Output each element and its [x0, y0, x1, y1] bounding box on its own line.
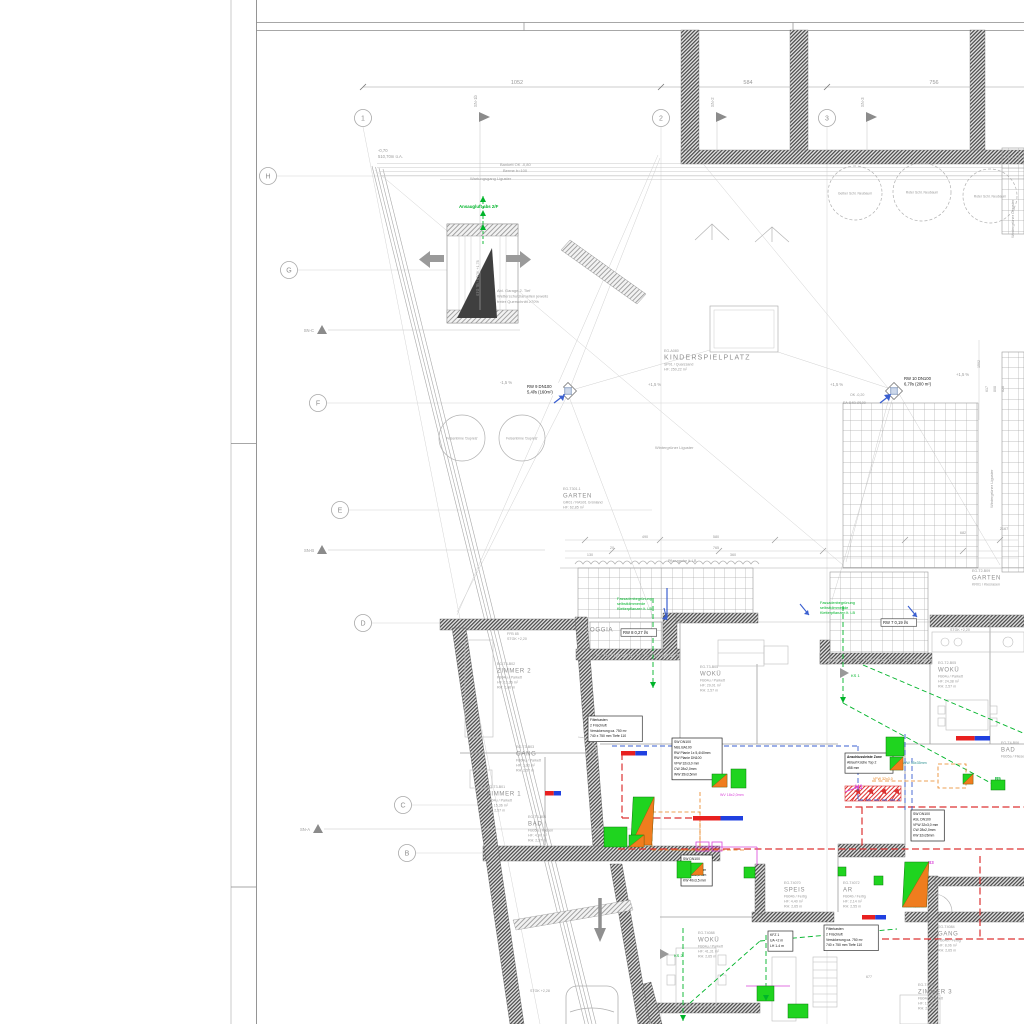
- room-sub: KR01 / Kiesrasen: [972, 583, 1000, 587]
- svg-text:RW 10 DN1006,7l/s (200 m²): RW 10 DN1006,7l/s (200 m²): [904, 376, 932, 386]
- svg-text:EG-T2-B09: EG-T2-B09: [972, 569, 990, 573]
- svg-text:STGK +2,28: STGK +2,28: [530, 989, 550, 993]
- svg-text:EG-T4084: EG-T4084: [938, 925, 955, 929]
- room-sub: FB04u / Parkett: [918, 997, 943, 1001]
- room-name: SPEIS: [784, 888, 805, 894]
- room-wokü: EG-T4088WOKÜFB04u / ParkettHF: 41,31 m²R…: [698, 931, 723, 959]
- annotation: 2167: [1000, 527, 1008, 531]
- svg-text:GR01 / RAS01 Grünland: GR01 / RAS01 Grünland: [563, 501, 603, 505]
- annotation: STGK +2,20: [950, 628, 970, 632]
- svg-text:RW Planie DN100: RW Planie DN100: [674, 756, 702, 760]
- annotation: Wartungsgang Liguster: [470, 176, 512, 181]
- svg-text:HF: 24,38 m²: HF: 24,38 m²: [938, 680, 960, 684]
- svg-text:FB05a / Fliesen: FB05a / Fliesen: [528, 829, 553, 833]
- svg-text:HF: 13,06 m²: HF: 13,06 m²: [918, 1002, 940, 1006]
- pipe-legend-line: WW 35x3,5mm: [674, 772, 697, 776]
- room-sub: RH: 2,66 m: [497, 686, 515, 690]
- room-name: ZIMMER 2: [497, 669, 531, 675]
- annotation: +1,5 %: [956, 372, 969, 377]
- svg-text:WW 35x35mm: WW 35x35mm: [903, 761, 927, 765]
- note-line: 2 Frischluft: [590, 723, 607, 727]
- section-marker-label: SN-3: [860, 97, 865, 107]
- room-sub: RH: 2,57 m: [700, 689, 718, 693]
- svg-text:Wartungsgang Liguster: Wartungsgang Liguster: [470, 176, 512, 181]
- top-walls: [681, 30, 1024, 164]
- room-bad: EG-T3-B04BADFB05a / FliesenHF: 4,97 m²RH…: [528, 815, 553, 843]
- svg-text:RH: 2,57 m: RH: 2,57 m: [516, 769, 534, 773]
- dimension-value: 756: [929, 80, 938, 86]
- room-sub: HF: 24,38 m²: [938, 680, 960, 684]
- svg-text:CW 28x2,0mm: CW 28x2,0mm: [674, 767, 697, 771]
- room-wokü: EG-T3-B05WOKÜFB04u / ParkettHF: 29,01 m²…: [700, 665, 725, 693]
- svg-text:Filterkasten: Filterkasten: [590, 718, 608, 722]
- svg-text:RH: 2,57 m: RH: 2,57 m: [528, 839, 546, 843]
- annotation: 130: [587, 553, 593, 557]
- svg-text:VFW 32x3,0: VFW 32x3,0: [873, 777, 893, 781]
- svg-text:-0,70: -0,70: [378, 148, 388, 153]
- room-name: ZIMMER 1: [487, 792, 521, 798]
- svg-text:EG-T3-B02: EG-T3-B02: [497, 662, 515, 666]
- grid-axis-label: 1: [361, 116, 365, 123]
- svg-text:EG-T3-B03: EG-T3-B03: [516, 745, 534, 749]
- svg-text:SW DN100: SW DN100: [683, 857, 700, 861]
- tree-label: Gelber Schl. Neubaum: [838, 192, 872, 196]
- annotation: 677: [866, 975, 872, 979]
- rw-flow-tag: RW 8 0,27 l/s: [621, 629, 657, 636]
- svg-text:STG 7B / STGK +1,78: STG 7B / STGK +1,78: [476, 260, 480, 296]
- annotation: Pflanzgrube lt. LB: [668, 559, 697, 563]
- red-blue-bar: [956, 736, 990, 741]
- room-sub: RH: 2,65 m: [784, 905, 802, 909]
- annotation: Wintergrüner Liguster: [1010, 199, 1015, 238]
- fixture-g: [677, 861, 691, 878]
- svg-text:Wintergrüner Liguster: Wintergrüner Liguster: [989, 469, 994, 508]
- svg-text:EG-T4070: EG-T4070: [784, 881, 801, 885]
- room-sub: RH: 2,65 m: [918, 1007, 936, 1011]
- svg-text:RH: 2,65 m: RH: 2,65 m: [918, 1007, 936, 1011]
- room-name: GARTEN: [972, 576, 1001, 582]
- svg-text:Felsenbirne 'Dupreis': Felsenbirne 'Dupreis': [446, 437, 478, 441]
- pipe-legend-box: SW DN100NBL BA100RW Planie 1x 5,4/40mmRW…: [672, 738, 722, 780]
- svg-text:3: 3: [825, 116, 829, 123]
- pipe-legend-line: CW 28x2,0mm: [674, 767, 697, 771]
- section-marker-label: SN-B: [304, 548, 314, 553]
- note-line: Versickerung ca. 750 m³: [826, 938, 863, 942]
- grid-axis-1: 1: [355, 110, 372, 127]
- room-sub: HF: 29,01 m²: [700, 684, 722, 688]
- annotation: KS 2: [674, 953, 683, 958]
- svg-text:KFZ 1: KFZ 1: [770, 933, 779, 937]
- red-blue-bar: [862, 915, 886, 920]
- svg-text:580: 580: [713, 535, 719, 539]
- svg-text:EG-T4088: EG-T4088: [698, 931, 715, 935]
- svg-text:EG-T3-B05: EG-T3-B05: [700, 665, 718, 669]
- pipe-legend-line: SW DN100: [913, 812, 930, 816]
- pergola-grids: [578, 148, 1024, 654]
- annotation: +1,5 %: [648, 382, 661, 387]
- svg-text:GARTEN: GARTEN: [972, 576, 1001, 582]
- annotation: STG 7B / STGK +1,78: [476, 260, 480, 296]
- svg-text:Anschlussleiste Zone: Anschlussleiste Zone: [847, 755, 882, 759]
- room-sub: RH: 2,65 m: [698, 955, 716, 959]
- annotation: 828: [1001, 386, 1005, 392]
- rw-flow-tag: RW 7 0,19 l/s: [881, 619, 917, 626]
- annotation: Wintergrüner Liguster: [989, 469, 994, 508]
- svg-text:130: 130: [587, 553, 593, 557]
- svg-text:RW 8 0,27 l/s: RW 8 0,27 l/s: [623, 630, 648, 635]
- dimension-value: 584: [743, 80, 752, 86]
- room-wokü: EG-T2-B05WOKÜFB04u / ParkettHF: 24,38 m²…: [938, 661, 963, 689]
- room-sub: SP01 / Quarzsand: [664, 363, 693, 367]
- svg-text:SN-B: SN-B: [304, 548, 314, 553]
- svg-text:B: B: [405, 851, 410, 858]
- drain-label: RW 10 DN1006,7l/s (200 m²): [902, 375, 943, 388]
- svg-text:SPEIS: SPEIS: [784, 888, 805, 894]
- annotation: -1,5 %: [500, 380, 512, 385]
- room-garten: EG-T2-B09GARTENKR01 / Kiesrasen: [972, 569, 1001, 587]
- svg-text:RH: 2,57 m: RH: 2,57 m: [700, 689, 718, 693]
- svg-text:FB04u / Parkett: FB04u / Parkett: [497, 676, 522, 680]
- svg-text:HF: 8,06 m²: HF: 8,06 m²: [938, 944, 958, 948]
- room-sub: HF: 13,36 m²: [497, 681, 519, 685]
- room-id: EG-T3-B04: [528, 815, 546, 819]
- svg-text:2167: 2167: [1000, 527, 1008, 531]
- svg-text:Versickerung ca. 750 m³: Versickerung ca. 750 m³: [590, 729, 627, 733]
- grid-axis-label: F: [316, 401, 320, 408]
- svg-text:FB04u / Parkett: FB04u / Parkett: [698, 945, 723, 949]
- svg-text:VFW 32x3,0 mm: VFW 32x3,0 mm: [674, 762, 699, 766]
- svg-text:HF: 4,97 m²: HF: 4,97 m²: [528, 834, 548, 838]
- svg-text:ZIMMER 2: ZIMMER 2: [497, 669, 531, 675]
- note-line: UA +2 m: [770, 938, 783, 942]
- svg-text:-1,5 %: -1,5 %: [500, 380, 512, 385]
- room-garten: EG-T301.1GARTENGR01 / RAS01 GrünlandHF: …: [563, 487, 603, 510]
- fixture-go: [890, 757, 903, 770]
- pipe-legend-line: KW 40x3,5 mm: [683, 879, 706, 883]
- svg-text:GANG: GANG: [516, 752, 536, 758]
- svg-text:360: 360: [730, 553, 736, 557]
- svg-text:Gelber Schl. Neubaum: Gelber Schl. Neubaum: [838, 192, 872, 196]
- annotation: Abl. Garage 2. TiefWetterschutzlamellen …: [497, 288, 548, 304]
- room-sub: FB04u / Parkett: [698, 945, 723, 949]
- fixture-g: [991, 780, 1005, 790]
- car: [566, 986, 618, 1024]
- green-arrow: [680, 1015, 686, 1021]
- annotation: WV 18x2,0mm: [720, 793, 744, 797]
- svg-text:Versickerung ca. 750 m³: Versickerung ca. 750 m³: [826, 938, 863, 942]
- fixture-go: [963, 774, 973, 784]
- svg-text:HF: 62,85 m²: HF: 62,85 m²: [563, 506, 585, 510]
- svg-text:SN-C: SN-C: [304, 328, 314, 333]
- room-sub: RH: 2,65 m: [938, 949, 956, 953]
- red-blue-bar: [621, 751, 647, 756]
- svg-text:RW Planie 1x 5,4/40mm: RW Planie 1x 5,4/40mm: [674, 751, 711, 755]
- fixture-tall: [902, 862, 928, 907]
- svg-text:RH: 2,65 m: RH: 2,65 m: [698, 955, 716, 959]
- note-line: Anschlussleiste Zone: [847, 755, 882, 759]
- svg-text:677: 677: [866, 975, 872, 979]
- svg-text:E: E: [338, 508, 343, 515]
- grid-axis-3: 3: [819, 110, 836, 127]
- room-sub: FB04u / Parkett: [700, 679, 725, 683]
- svg-text:d58 mm: d58 mm: [847, 766, 859, 770]
- grid-axis-E: E: [332, 502, 349, 519]
- section-marker-label: SN-2: [710, 97, 715, 107]
- room-id: EG-T4072: [843, 881, 860, 885]
- svg-text:+1,5 %: +1,5 %: [830, 382, 843, 387]
- room-id: EG-T3-B02: [497, 662, 515, 666]
- svg-text:BAD: BAD: [1001, 748, 1015, 754]
- annotation: 20: [610, 546, 614, 550]
- pipe-legend-line: KW 32x26mm: [913, 834, 934, 838]
- room-name: LOGGIA: [586, 628, 613, 634]
- grid-axis-D: D: [355, 615, 372, 632]
- svg-text:765: 765: [713, 546, 719, 550]
- svg-text:FB04u / Parkett: FB04u / Parkett: [516, 759, 541, 763]
- svg-text:HF: 4,40 m²: HF: 4,40 m²: [784, 900, 804, 904]
- svg-text:1: 1: [361, 116, 365, 123]
- section-marker-label: SN-1b: [473, 94, 478, 107]
- exterior-stair: [561, 240, 646, 304]
- svg-text:ZIMMER 1: ZIMMER 1: [487, 792, 521, 798]
- svg-text:EG-T4072: EG-T4072: [843, 881, 860, 885]
- svg-text:ASL DN100: ASL DN100: [913, 817, 931, 821]
- room-name: AR: [843, 888, 853, 894]
- svg-text:FB04u / Parkett: FB04u / Parkett: [487, 799, 512, 803]
- room-id: EG-A080: [664, 349, 679, 353]
- svg-text:UA +2 m: UA +2 m: [770, 938, 783, 942]
- svg-text:2 Frischluft: 2 Frischluft: [826, 932, 843, 936]
- room-name: GARTEN: [563, 494, 592, 500]
- svg-text:EG-T301.1: EG-T301.1: [563, 487, 581, 491]
- fixture-go: [691, 863, 703, 875]
- svg-text:EA-B4B-Ø100: EA-B4B-Ø100: [843, 401, 866, 405]
- svg-text:SN-A: SN-A: [300, 827, 310, 832]
- annotation: 765: [713, 546, 719, 550]
- room-loggia: LOGGIA: [586, 628, 613, 634]
- room-ar: EG-T4072ARFB04b / FertigHF: 2,14 m²RH: 2…: [843, 881, 866, 909]
- room-name: GANG: [516, 752, 536, 758]
- room-sub: HF: 3,03 m²: [516, 764, 536, 768]
- svg-text:FB05a / Fliesen: FB05a / Fliesen: [1001, 755, 1024, 759]
- room-sub: FB04u / Parkett: [938, 675, 963, 679]
- svg-text:HF: 15,36 m²: HF: 15,36 m²: [487, 804, 509, 808]
- room-id: EG-T4070: [784, 881, 801, 885]
- svg-text:682: 682: [960, 531, 966, 535]
- room-id: EG-T2-B05: [938, 661, 956, 665]
- svg-text:H1: H1: [855, 785, 863, 791]
- svg-text:LH 1-4 m: LH 1-4 m: [770, 944, 784, 948]
- svg-text:SN-2: SN-2: [710, 97, 715, 107]
- fixture-g: [744, 867, 755, 878]
- annotation: 1502: [977, 360, 981, 368]
- grid-axis-2: 2: [653, 110, 670, 127]
- svg-text:G: G: [286, 268, 291, 275]
- svg-text:RH: 2,57 m: RH: 2,57 m: [487, 809, 505, 813]
- green-arrow: [650, 682, 656, 688]
- svg-text:STGK +2,20: STGK +2,20: [950, 628, 970, 632]
- svg-text:SW DN100: SW DN100: [674, 740, 691, 744]
- svg-text:Abl. Garage 2. TiefWetterschut: Abl. Garage 2. TiefWetterschutzlamellen …: [497, 288, 548, 304]
- room-sub: RH: 2,57 m: [528, 839, 546, 843]
- sandbox: [695, 224, 789, 352]
- svg-text:Berme b=100: Berme b=100: [503, 168, 528, 173]
- annotation: WW 35x35mm: [903, 761, 927, 765]
- grid-axis-label: D: [360, 621, 365, 628]
- svg-text:SP01 / Quarzsand: SP01 / Quarzsand: [664, 363, 693, 367]
- svg-text:SW DN100: SW DN100: [913, 812, 930, 816]
- red-blue-bar: [693, 816, 743, 821]
- tree-label: Felsenbirne 'Dupreis': [506, 437, 538, 441]
- svg-text:2: 2: [659, 116, 663, 123]
- room-zimmer-2: EG-T3-B02ZIMMER 2FB04u / ParkettHF: 13,3…: [497, 662, 531, 690]
- annotation: OK -0,20: [850, 393, 864, 397]
- svg-text:RW 9 DN1005,4l/s (160m²): RW 9 DN1005,4l/s (160m²): [527, 384, 553, 394]
- room-sub: HF: 8,06 m²: [938, 944, 958, 948]
- annotation: Bankett OK -0,80: [500, 162, 531, 167]
- note-line: Filterkasten: [826, 927, 844, 931]
- room-sub: FB04u / Parkett: [487, 799, 512, 803]
- grid-axis-H: H: [260, 168, 277, 185]
- tree-label: Felsenbirne 'Dupreis': [446, 437, 478, 441]
- pipe-legend-line: RW Planie DN100: [674, 756, 702, 760]
- svg-text:RW 7 0,19 l/s: RW 7 0,19 l/s: [883, 620, 908, 625]
- grid-axis-label: C: [400, 803, 405, 810]
- svg-text:510,70m ü.A.: 510,70m ü.A.: [378, 154, 403, 159]
- svg-text:EG-T4-B06: EG-T4-B06: [1001, 741, 1019, 745]
- annotation: -0,70: [378, 148, 388, 153]
- svg-text:AR: AR: [843, 888, 853, 894]
- pipe-legend-line: ASL DN100: [913, 817, 931, 821]
- cad-floor-plan-sheet: 123HGFEDCBSN-1bSN-2SN-3SN-CSN-BSN-A10525…: [0, 0, 1024, 1024]
- room-sub: FB04b / Fertig: [938, 939, 961, 943]
- room-zimmer-1: EG-T3-B01ZIMMER 1FB04u / ParkettHF: 15,3…: [487, 785, 521, 813]
- annotation: 510,70m ü.A.: [378, 154, 403, 159]
- svg-text:490: 490: [642, 535, 648, 539]
- fixture-g: [604, 827, 627, 847]
- note-line: KFZ 1: [770, 933, 779, 937]
- pipe-legend-line: VFW 32x3,0 mm: [913, 823, 938, 827]
- svg-text:Wintergrüner Liguster: Wintergrüner Liguster: [1010, 199, 1015, 238]
- section-marker-SN-B: SN-B: [304, 545, 545, 554]
- annotation: 808: [993, 386, 997, 392]
- note-line: d58 mm: [847, 766, 859, 770]
- section-marker-label: SN-A: [300, 827, 310, 832]
- svg-text:FB04b / Fertig: FB04b / Fertig: [843, 895, 866, 899]
- svg-text:CW 28x2,0mm: CW 28x2,0mm: [913, 828, 936, 832]
- section-marker-SN-2: SN-2: [710, 97, 727, 152]
- floor-plan-canvas: 123HGFEDCBSN-1bSN-2SN-3SN-CSN-BSN-A10525…: [0, 0, 1024, 1024]
- room-sub: FB04b / Fertig: [843, 895, 866, 899]
- room-gang: EG-T3-B03GANGFB04u / ParkettHF: 3,03 m²R…: [516, 745, 541, 773]
- svg-text:WOKÜ: WOKÜ: [698, 937, 719, 944]
- grid-axis-F: F: [310, 395, 327, 412]
- room-sub: GR01 / RAS01 Grünland: [563, 501, 603, 505]
- svg-text:KS 1: KS 1: [851, 673, 860, 678]
- svg-text:FB04b / Fertig: FB04b / Fertig: [784, 895, 807, 899]
- svg-text:740 x 750 mm Tiefe 110: 740 x 750 mm Tiefe 110: [826, 943, 862, 947]
- grid-axis-label: B: [405, 851, 410, 858]
- annotation: 360: [730, 553, 736, 557]
- svg-text:756: 756: [929, 80, 938, 86]
- drain-label: RW 9 DN1005,4l/s (160m²): [525, 383, 563, 396]
- heating-manifold: [845, 786, 901, 801]
- room-name: WOKÜ: [700, 671, 721, 678]
- svg-text:HF: 29,01 m²: HF: 29,01 m²: [700, 684, 722, 688]
- svg-text:SN-1b: SN-1b: [473, 94, 478, 107]
- dimension-value: 1052: [511, 80, 523, 86]
- grid-axis-C: C: [395, 797, 412, 814]
- room-sub: HF: 13,06 m²: [918, 1002, 940, 1006]
- svg-text:EG-T3-B01: EG-T3-B01: [487, 785, 505, 789]
- tree: Felsenbirne 'Dupreis': [439, 415, 485, 461]
- note-line: 2 Frischluft: [826, 932, 843, 936]
- svg-text:740 x 750 mm Tiefe 110: 740 x 750 mm Tiefe 110: [590, 734, 626, 738]
- room-sub: HF: 250,22 m²: [664, 368, 688, 372]
- room-id: EG-T4086: [918, 983, 935, 987]
- svg-text:Filterkasten: Filterkasten: [826, 927, 844, 931]
- svg-text:EG-T4086: EG-T4086: [918, 983, 935, 987]
- room-sub: FB04b / Fertig: [784, 895, 807, 899]
- svg-text:Roter Schl. Neubaum: Roter Schl. Neubaum: [974, 195, 1007, 199]
- svg-text:EG-A080: EG-A080: [664, 349, 679, 353]
- grid-axis-B: B: [399, 845, 416, 862]
- room-sub: RH: 2,57 m: [516, 769, 534, 773]
- room-id: EG-T301.1: [563, 487, 581, 491]
- svg-text:KINDERSPIELPLATZ: KINDERSPIELPLATZ: [664, 355, 751, 362]
- tree: Gelber Schl. Neubaum: [828, 166, 882, 220]
- fixture-g: [886, 737, 904, 756]
- svg-text:KW 40x3,5 mm: KW 40x3,5 mm: [683, 879, 706, 883]
- note-line: Filterkasten: [590, 718, 608, 722]
- annotation: 580: [713, 535, 719, 539]
- annotation: Berme b=100: [503, 168, 528, 173]
- fixture-g: [788, 1004, 808, 1018]
- svg-text:FB04b / Fertig: FB04b / Fertig: [938, 939, 961, 943]
- svg-text:GANG: GANG: [938, 932, 958, 938]
- fixture-go: [712, 774, 727, 787]
- svg-text:SN-3: SN-3: [860, 97, 865, 107]
- section-marker-label: SN-C: [304, 328, 314, 333]
- grid-axis-G: G: [281, 262, 298, 279]
- svg-text:EG-T2-B05: EG-T2-B05: [938, 661, 956, 665]
- fixture-g: [731, 769, 746, 788]
- svg-text:FB04u / Parkett: FB04u / Parkett: [700, 679, 725, 683]
- roof-drains: RW 9 DN1005,4l/s (160m²)RW 10 DN1006,7l/…: [525, 375, 943, 403]
- svg-text:RH: 2,57 m: RH: 2,57 m: [938, 685, 956, 689]
- annotation: 490: [642, 535, 648, 539]
- svg-text:584: 584: [743, 80, 752, 86]
- svg-text:HF: 13,36 m²: HF: 13,36 m²: [497, 681, 519, 685]
- room-sub: RH: 2,57 m: [938, 685, 956, 689]
- svg-text:20: 20: [610, 546, 614, 550]
- room-name: GANG: [938, 932, 958, 938]
- annotation: STGK +2,28: [530, 989, 550, 993]
- svg-text:RH: 2,55 m: RH: 2,55 m: [843, 905, 861, 909]
- pipe-legend-line: VFW 32x3,0 mm: [674, 762, 699, 766]
- room-kinderspielplatz: EG-A080KINDERSPIELPLATZSP01 / QuarzsandH…: [664, 349, 751, 372]
- room-name: KINDERSPIELPLATZ: [664, 355, 751, 362]
- svg-text:Felsenbirne 'Dupreis': Felsenbirne 'Dupreis': [506, 437, 538, 441]
- room-sub: HF: 4,97 m²: [528, 834, 548, 838]
- svg-text:VFW 32x3,0 mm: VFW 32x3,0 mm: [913, 823, 938, 827]
- room-id: EG-T3-B05: [700, 665, 718, 669]
- svg-text:Ablauf Küche Top 2: Ablauf Küche Top 2: [847, 760, 876, 764]
- svg-text:1502: 1502: [977, 360, 981, 368]
- annotation: KS 1: [851, 673, 860, 678]
- note-line: 740 x 750 mm Tiefe 110: [826, 943, 862, 947]
- room-sub: FB05a / Fliesen: [528, 829, 553, 833]
